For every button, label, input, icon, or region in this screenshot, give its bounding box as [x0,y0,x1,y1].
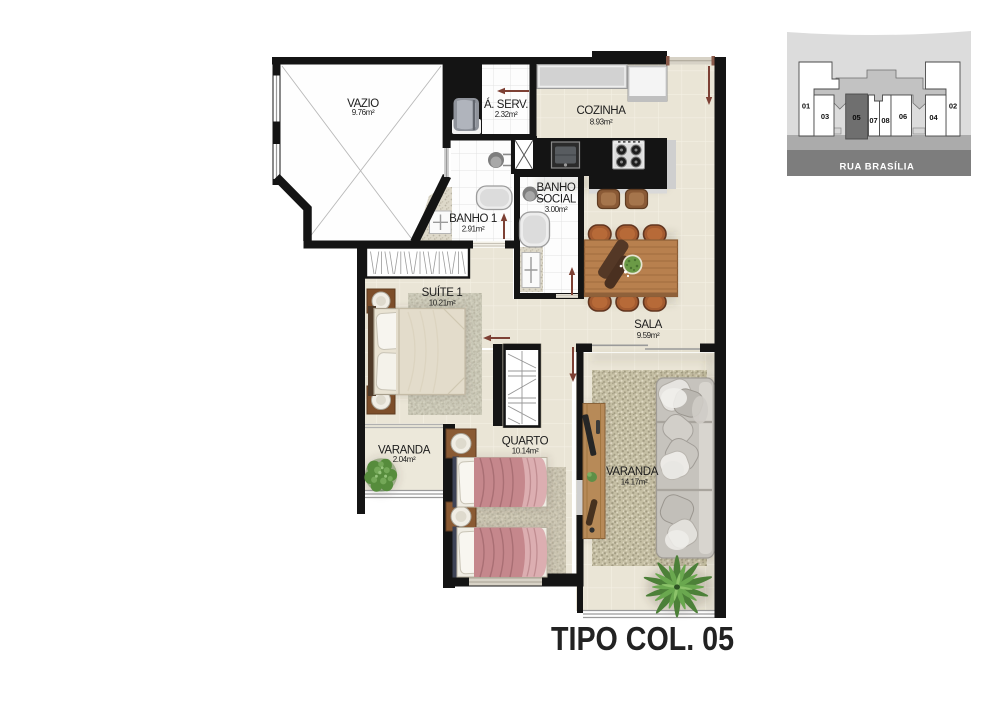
svg-text:2.04m²: 2.04m² [393,455,416,464]
svg-text:TIPO COL. 05: TIPO COL. 05 [551,621,734,658]
svg-text:2.91m²: 2.91m² [462,225,485,234]
svg-text:07: 07 [869,116,877,125]
svg-text:14.17m²: 14.17m² [621,478,648,487]
svg-text:3.00m²: 3.00m² [545,205,568,214]
svg-text:SOCIAL: SOCIAL [536,194,577,206]
svg-text:10.14m²: 10.14m² [512,447,539,456]
svg-text:SUÍTE 1: SUÍTE 1 [422,286,463,299]
svg-text:05: 05 [852,113,860,122]
svg-text:8.93m²: 8.93m² [590,118,613,127]
svg-text:08: 08 [881,116,889,125]
svg-text:9.76m²: 9.76m² [352,108,375,117]
svg-text:RUA BRASÍLIA: RUA BRASÍLIA [840,162,915,173]
svg-text:06: 06 [899,112,907,121]
svg-text:VARANDA: VARANDA [606,466,659,478]
svg-text:10.21m²: 10.21m² [429,299,456,308]
svg-text:04: 04 [929,113,938,122]
svg-text:03: 03 [821,112,829,121]
svg-text:01: 01 [802,102,810,111]
svg-text:BANHO 1: BANHO 1 [449,213,497,225]
svg-text:9.59m²: 9.59m² [637,331,660,340]
svg-text:2.32m²: 2.32m² [495,110,518,119]
svg-text:SALA: SALA [634,319,663,331]
svg-text:02: 02 [949,102,957,111]
svg-text:COZINHA: COZINHA [577,105,627,117]
svg-text:BANHO: BANHO [537,182,576,194]
